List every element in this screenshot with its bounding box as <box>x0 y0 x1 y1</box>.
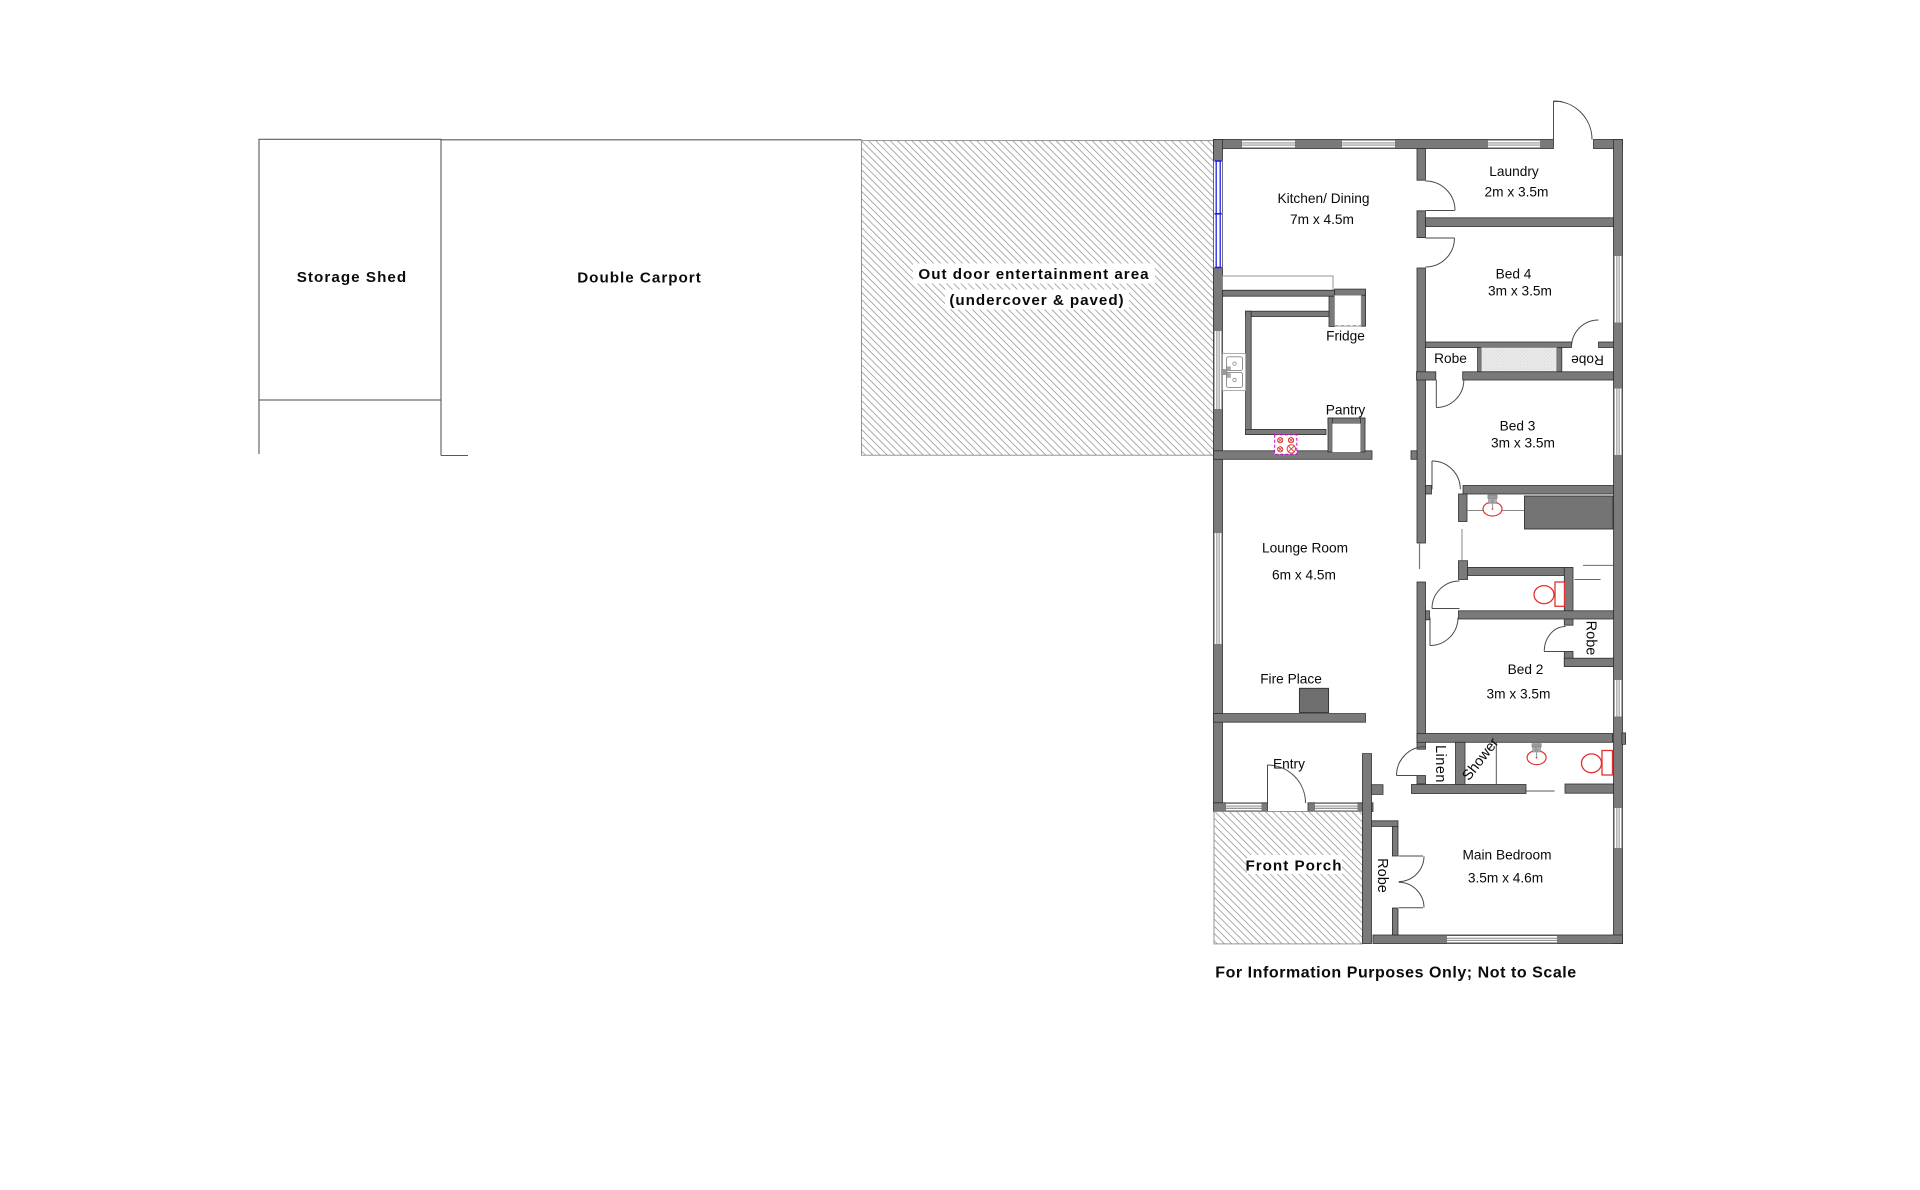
svg-text:7m x 4.5m: 7m x 4.5m <box>1290 212 1354 227</box>
svg-text:3m x 3.5m: 3m x 3.5m <box>1488 284 1552 299</box>
svg-text:Laundry: Laundry <box>1489 164 1539 179</box>
svg-text:Robe: Robe <box>1571 353 1604 368</box>
svg-text:Storage Shed: Storage Shed <box>297 269 408 286</box>
svg-text:Bed 4: Bed 4 <box>1496 267 1532 282</box>
svg-text:Fire Place: Fire Place <box>1260 672 1322 687</box>
svg-text:3m x 3.5m: 3m x 3.5m <box>1491 436 1555 451</box>
svg-text:Robe: Robe <box>1583 621 1599 656</box>
svg-text:Kitchen/ Dining: Kitchen/ Dining <box>1277 191 1369 206</box>
svg-text:Lounge Room: Lounge Room <box>1262 541 1348 556</box>
svg-text:Front Porch: Front Porch <box>1245 858 1342 875</box>
svg-text:6m x 4.5m: 6m x 4.5m <box>1272 568 1336 583</box>
svg-text:For Information Purposes Only;: For Information Purposes Only; Not to Sc… <box>1215 965 1576 982</box>
svg-text:Double Carport: Double Carport <box>577 270 702 287</box>
svg-text:(undercover & paved): (undercover & paved) <box>949 292 1124 309</box>
svg-text:Robe: Robe <box>1434 351 1467 366</box>
svg-text:2m x 3.5m: 2m x 3.5m <box>1485 185 1549 200</box>
svg-text:3m x 3.5m: 3m x 3.5m <box>1487 687 1551 702</box>
svg-text:Main Bedroom: Main Bedroom <box>1462 848 1551 863</box>
svg-text:3.5m x 4.6m: 3.5m x 4.6m <box>1468 871 1543 886</box>
svg-text:Robe: Robe <box>1374 858 1390 893</box>
svg-text:Out door entertainment area: Out door entertainment area <box>918 266 1149 283</box>
svg-text:Bed 3: Bed 3 <box>1500 419 1536 434</box>
svg-text:Bed 2: Bed 2 <box>1508 662 1544 677</box>
svg-text:Linen: Linen <box>1432 745 1448 783</box>
svg-text:Pantry: Pantry <box>1326 403 1366 418</box>
svg-text:Entry: Entry <box>1273 757 1305 772</box>
svg-text:Fridge: Fridge <box>1326 329 1365 344</box>
